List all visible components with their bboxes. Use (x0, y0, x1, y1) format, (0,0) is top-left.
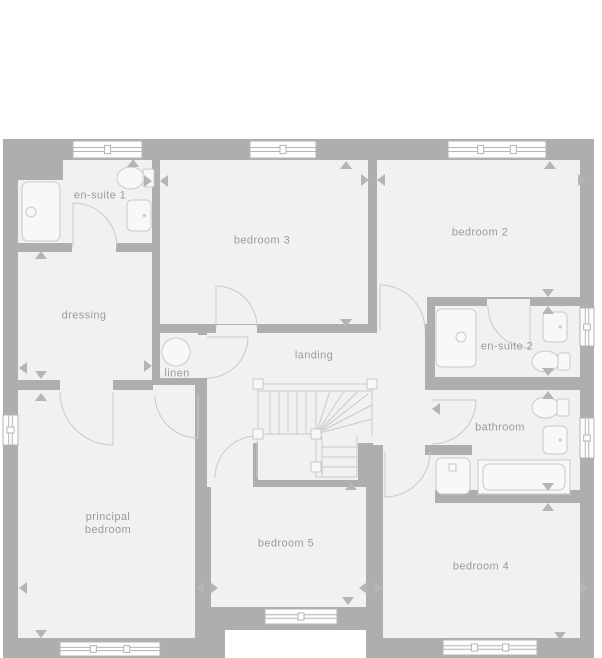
toilet-cistern (558, 353, 570, 370)
room-floor (198, 335, 207, 378)
room-floor (211, 475, 253, 487)
toilet-cistern (557, 399, 569, 416)
window-mullion (90, 646, 96, 653)
floor-plan (0, 0, 602, 658)
sink-tap-icon (559, 325, 562, 328)
room-floor (18, 252, 152, 380)
room-floor (153, 385, 195, 397)
window-icon (60, 642, 160, 656)
room-floor (72, 243, 116, 252)
window-mullion (503, 644, 509, 651)
sink-icon (543, 426, 567, 454)
stair-newel-post (367, 379, 377, 389)
room-floor (377, 324, 425, 333)
room-floor (258, 443, 358, 480)
sink-icon (543, 312, 567, 342)
window-mullion (510, 145, 516, 153)
bath-inner (483, 464, 565, 490)
room-floor (216, 325, 257, 333)
room-floor (383, 455, 435, 638)
shower-icon (436, 458, 470, 494)
window-mullion (105, 145, 111, 153)
room-floor (160, 160, 368, 324)
window-mullion (298, 613, 304, 620)
sink-tap-icon (559, 438, 562, 441)
stair-newel-post (253, 379, 263, 389)
room-floor (435, 503, 580, 638)
window-icon (443, 640, 537, 655)
footprint-cutout (225, 630, 366, 658)
stair-newel-post (311, 429, 321, 439)
window-mullion (280, 145, 286, 153)
sink-icon (127, 200, 151, 231)
shower-drain-icon (449, 464, 456, 471)
window-mullion (124, 646, 130, 653)
stair-newel-post (253, 429, 263, 439)
window-mullion (584, 324, 591, 330)
room-floor (211, 487, 366, 607)
window-mullion (478, 145, 484, 153)
window-mullion (584, 435, 591, 441)
linen-tank-icon (162, 338, 190, 366)
stair-newel-post (311, 462, 321, 472)
window-mullion (471, 644, 477, 651)
room-floor (383, 443, 425, 457)
room-floor (60, 380, 113, 392)
window-mullion (7, 427, 14, 433)
room-floor (373, 390, 435, 445)
toilet-icon (532, 397, 559, 418)
shower-icon (22, 182, 60, 241)
floor-plan-page: en-suite 1bedroom 3bedroom 2dressingline… (0, 0, 602, 658)
room-floor (18, 390, 195, 638)
room-floor (487, 299, 530, 308)
sink-tap-icon (143, 214, 146, 217)
toilet-icon (117, 167, 144, 189)
window-icon (448, 141, 546, 158)
room-floor (207, 333, 373, 443)
